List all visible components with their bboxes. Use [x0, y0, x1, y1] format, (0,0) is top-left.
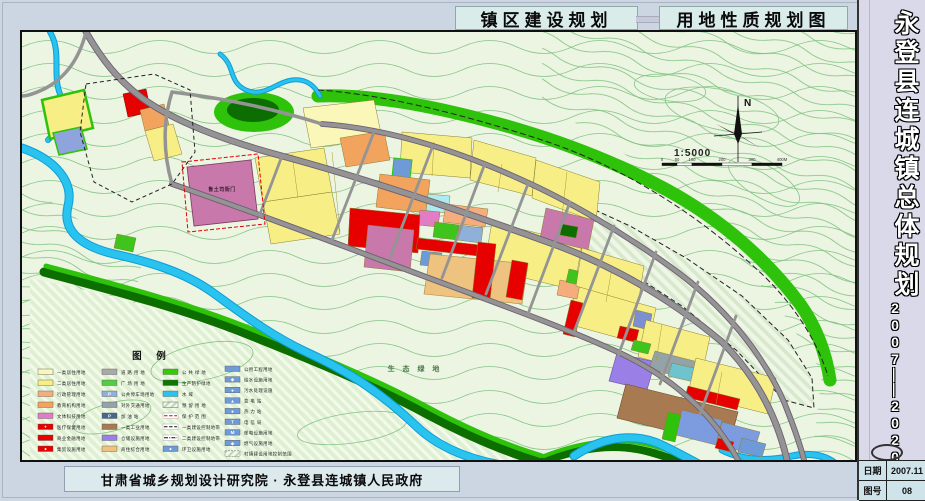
date-value: 2007.11	[887, 461, 925, 480]
svg-text:N: N	[744, 98, 751, 109]
header-title-left-text: 镇区建设规划	[481, 6, 613, 31]
sheet-no-value: 08	[887, 481, 925, 500]
svg-text:●: ●	[44, 447, 47, 452]
svg-text:文体科技用地: 文体科技用地	[57, 413, 86, 420]
svg-text:生 态 绿 地: 生 态 绿 地	[388, 364, 443, 373]
header-title-left: 镇区建设规划	[455, 6, 638, 30]
seal-icon	[871, 444, 903, 461]
svg-text:▲: ▲	[230, 398, 235, 403]
header-title-right: 用地性质规划图	[659, 6, 848, 30]
header-title-connector	[636, 16, 659, 23]
svg-text:一类建设控制地带: 一类建设控制地带	[182, 424, 221, 431]
svg-text:二类建设控制地带: 二类建设控制地带	[182, 435, 221, 442]
svg-text:◆: ◆	[231, 441, 235, 446]
svg-text:鲁土司衙门: 鲁土司衙门	[208, 186, 236, 193]
svg-text:给水设施用地: 给水设施用地	[244, 376, 273, 383]
svg-text:对外交通用地: 对外交通用地	[121, 402, 150, 409]
table-row-number: 图号 08	[859, 481, 925, 501]
svg-text:污水处理设施: 污水处理设施	[244, 387, 273, 394]
svg-text:行政管理用地: 行政管理用地	[57, 391, 86, 398]
svg-text:道 路 用 地: 道 路 用 地	[121, 369, 145, 376]
svg-text:保 护 范 围: 保 护 范 围	[182, 413, 206, 420]
sheet-no-label: 图号	[859, 481, 887, 500]
title-sidebar: 永登县连城镇总体规划 2007——2020 日期 2007.11 图号 08	[857, 0, 925, 500]
svg-text:◆: ◆	[231, 377, 235, 382]
svg-text:●: ●	[231, 409, 234, 414]
svg-text:水 域: 水 域	[182, 391, 193, 397]
map-frame: 鲁土司衙门生 态 绿 地N1:5000050100200300400M图 例一类…	[20, 30, 857, 462]
date-label: 日期	[859, 461, 887, 480]
svg-text:一类工业用地: 一类工业用地	[121, 424, 150, 431]
svg-text:二类居住用地: 二类居住用地	[57, 380, 86, 387]
plan-years-dash2: —	[887, 383, 903, 398]
map-canvas: 鲁土司衙门生 态 绿 地N1:5000050100200300400M图 例一类…	[22, 32, 855, 460]
svg-text:广 场 用 地: 广 场 用 地	[121, 380, 145, 387]
svg-text:公 共 绿 地: 公 共 绿 地	[182, 369, 206, 376]
svg-text:公用工程用地: 公用工程用地	[244, 366, 273, 373]
plan-years-dash1: —	[887, 368, 903, 383]
svg-text:P: P	[108, 414, 111, 419]
svg-text:+: +	[44, 425, 47, 430]
sidebar-divider	[869, 0, 870, 500]
table-row-date: 日期 2007.11	[859, 461, 925, 481]
header-title-right-text: 用地性质规划图	[677, 6, 831, 31]
svg-text:M: M	[231, 430, 235, 435]
svg-text:图 例: 图 例	[132, 350, 172, 362]
svg-text:集贸设施用地: 集贸设施用地	[57, 446, 86, 453]
svg-text:50: 50	[675, 157, 680, 162]
plan-years-start: 2007	[887, 300, 903, 368]
svg-text:100: 100	[689, 157, 697, 162]
svg-text:电 信 局: 电 信 局	[244, 419, 262, 426]
plan-years: 2007——2020	[887, 300, 903, 466]
svg-text:P: P	[108, 392, 111, 397]
svg-text:村镇建设用地控制范围: 村镇建设用地控制范围	[244, 451, 292, 458]
svg-text:预 留 用 地: 预 留 用 地	[182, 402, 206, 409]
svg-text:商业金融用地: 商业金融用地	[57, 435, 86, 442]
svg-text:医疗保健用地: 医疗保健用地	[57, 424, 86, 431]
credit-bar: 甘肃省城乡规划设计研究院 · 永登县连城镇人民政府	[64, 466, 460, 492]
svg-text:商住综合用地: 商住综合用地	[121, 446, 150, 453]
svg-text:燃气设施用地: 燃气设施用地	[244, 440, 273, 447]
title-block-table: 日期 2007.11 图号 08	[859, 460, 925, 501]
credit-text: 甘肃省城乡规划设计研究院 · 永登县连城镇人民政府	[101, 470, 424, 489]
svg-text:仓储设施用地: 仓储设施用地	[121, 435, 150, 442]
svg-text:环卫设施用地: 环卫设施用地	[182, 446, 211, 453]
svg-text:一类居住用地: 一类居住用地	[57, 369, 86, 376]
svg-text:教育机构用地: 教育机构用地	[57, 402, 86, 409]
svg-text:200: 200	[719, 157, 727, 162]
drawing-title-vertical: 永登县连城镇总体规划	[879, 10, 923, 300]
svg-text:邮电设施用地: 邮电设施用地	[244, 429, 273, 436]
svg-text:变 电 站: 变 电 站	[244, 398, 262, 405]
svg-text:●: ●	[169, 447, 172, 452]
svg-text:加 油 站: 加 油 站	[121, 413, 139, 420]
svg-text:生产防护绿地: 生产防护绿地	[182, 380, 211, 387]
svg-text:●: ●	[231, 388, 234, 393]
svg-text:400M: 400M	[777, 157, 788, 162]
svg-text:300: 300	[749, 157, 757, 162]
svg-text:热 力 站: 热 力 站	[244, 408, 262, 415]
svg-text:公共停车场用地: 公共停车场用地	[121, 391, 155, 398]
legend-item: 预 留 用 地	[163, 402, 206, 409]
svg-text:T: T	[231, 420, 234, 425]
